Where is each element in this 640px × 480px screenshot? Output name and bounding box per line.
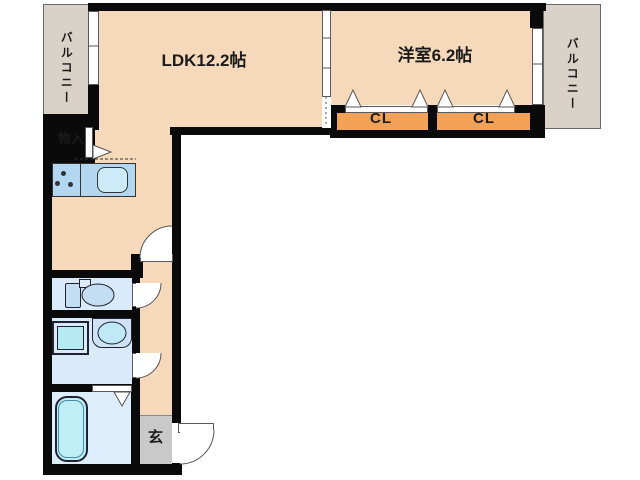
room-label-entrance: 玄 (139, 430, 172, 447)
kitchen-counter-divider (80, 163, 81, 197)
stove-burner-dot (61, 171, 66, 176)
wall (88, 3, 546, 11)
bathtub-inner (58, 400, 84, 458)
room-label-ldk: LDK12.2帖 (148, 52, 260, 71)
wall (428, 105, 437, 130)
washer-pan-inner (57, 326, 84, 350)
entrance-door-leaf (178, 423, 214, 433)
wash-basin-cabinet (92, 318, 132, 348)
ldk-door-leaf (140, 254, 173, 262)
toilet-room-floor (52, 278, 132, 310)
wall (132, 307, 140, 318)
wall (530, 105, 545, 133)
toilet-door-leaf (132, 283, 140, 307)
wall (43, 310, 132, 318)
room-label-balcony-right: バルコニー (565, 28, 578, 120)
stove-burner-dot (55, 181, 60, 186)
room-label-balcony-left: バルコニー (59, 22, 72, 114)
bathroom-door-track (92, 385, 132, 392)
entrance-door-arc (180, 430, 214, 464)
partition-gap (322, 97, 331, 128)
toilet-lid-box (79, 279, 91, 288)
wall (172, 463, 181, 475)
wall (43, 114, 52, 475)
room-label-closet-right: CL (463, 111, 505, 128)
kitchen-sink (97, 167, 128, 193)
wall (172, 127, 181, 423)
wall (330, 130, 545, 138)
room-label-closet-left: CL (360, 111, 402, 128)
floor-plan: LDK12.2帖 洋室6.2帖 CL CL バルコニー バルコニー 物入 玄 (0, 0, 640, 480)
hallway-floor (140, 262, 172, 415)
room-label-western: 洋室6.2帖 (385, 47, 485, 66)
room-label-storage: 物入 (55, 132, 87, 146)
wall (132, 318, 140, 353)
wall (131, 392, 140, 464)
window-western-balcony (532, 28, 543, 105)
wall (330, 105, 337, 130)
washroom-door-leaf (132, 353, 140, 378)
entrance-door-swing (180, 430, 214, 464)
wall (43, 270, 143, 278)
wall (43, 464, 182, 475)
wall (170, 127, 335, 135)
window-ldk-balcony (88, 11, 99, 85)
stove-burner-dot (68, 182, 73, 187)
wall (530, 10, 543, 28)
sliding-partition (322, 10, 331, 97)
